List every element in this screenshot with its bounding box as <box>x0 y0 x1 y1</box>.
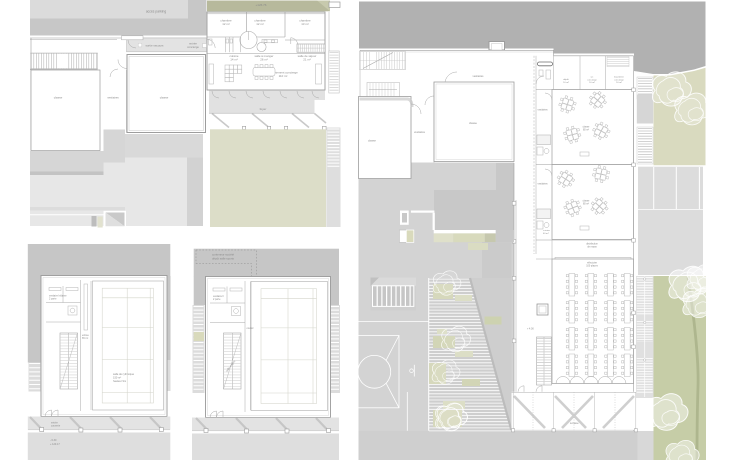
svg-text:hauteur 9m: hauteur 9m <box>113 379 126 383</box>
svg-text:- 6.30: - 6.30 <box>50 439 57 442</box>
svg-text:12 m²: 12 m² <box>222 22 229 26</box>
svg-text:2 porte: 2 porte <box>213 298 221 301</box>
svg-text:classe: classe <box>469 121 477 125</box>
svg-text:150 m²: 150 m² <box>113 375 121 379</box>
svg-text:10 m²: 10 m² <box>589 81 595 84</box>
svg-text:buanderie: buanderie <box>614 76 625 79</box>
svg-text:2 porte: 2 porte <box>49 298 57 301</box>
svg-text:de repas: de repas <box>587 246 597 249</box>
svg-text:sortie secours: sortie secours <box>146 43 165 47</box>
svg-text:+126.76: +126.76 <box>256 3 267 7</box>
svg-text:100 places: 100 places <box>586 265 598 268</box>
svg-text:concierge: concierge <box>587 78 597 81</box>
svg-text:classe: classe <box>368 139 376 143</box>
svg-text:dépôt: dépôt <box>563 78 569 81</box>
svg-text:80 m²: 80 m² <box>583 203 589 206</box>
svg-text:couverte: couverte <box>51 425 61 428</box>
svg-text:terrasse: terrasse <box>570 422 579 425</box>
svg-text:vestiaires: vestiaires <box>107 96 119 100</box>
svg-text:40 m²: 40 m² <box>543 232 549 235</box>
svg-text:dépôt salle sports: dépôt salle sports <box>212 257 235 261</box>
svg-text:concierge: concierge <box>614 78 624 81</box>
svg-text:accès parking: accès parking <box>146 9 167 13</box>
svg-text:14 m²: 14 m² <box>230 58 237 62</box>
svg-text:vestiaires: vestiaires <box>473 74 485 78</box>
svg-text:10 m²: 10 m² <box>563 81 569 84</box>
svg-text:concierge: concierge <box>187 45 199 49</box>
svg-text:12 m²: 12 m² <box>256 22 263 26</box>
svg-text:salle de rythmique: salle de rythmique <box>113 372 135 376</box>
svg-text:vestiaires: vestiaires <box>538 183 549 186</box>
svg-text:10 m²: 10 m² <box>616 81 622 84</box>
svg-text:13 m²: 13 m² <box>301 22 308 26</box>
svg-text:couloir: couloir <box>247 327 254 330</box>
svg-text:21 m²: 21 m² <box>303 58 310 62</box>
svg-text:classe: classe <box>160 96 169 100</box>
svg-text:vestiaires: vestiaires <box>414 130 426 134</box>
svg-text:vestiaires: vestiaires <box>538 109 549 112</box>
svg-text:65 m²: 65 m² <box>82 337 88 340</box>
svg-text:+ 4.00: + 4.00 <box>527 328 534 331</box>
svg-text:+ 120.17: + 120.17 <box>50 443 60 446</box>
svg-text:110 m²: 110 m² <box>279 74 288 78</box>
svg-text:foyer: foyer <box>260 107 267 111</box>
svg-text:cuisine: cuisine <box>543 230 551 232</box>
svg-text:80 m²: 80 m² <box>583 129 589 132</box>
svg-text:classe: classe <box>54 96 63 100</box>
svg-text:entrée: entrée <box>189 42 197 46</box>
svg-text:26 m²: 26 m² <box>260 58 267 62</box>
